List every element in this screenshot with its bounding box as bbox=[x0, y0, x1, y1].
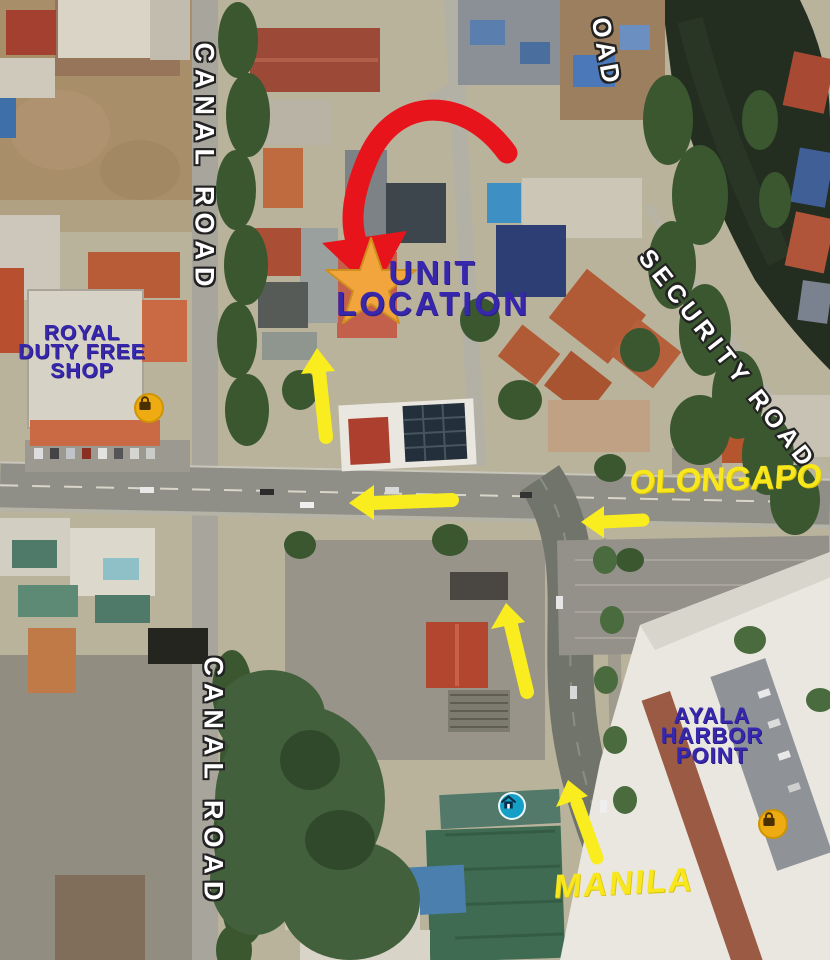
olongapo-direction-label: OLONGAPO bbox=[628, 457, 823, 502]
unit-location-label: UNIT LOCATION bbox=[336, 257, 530, 319]
poi-royal-duty-free bbox=[134, 393, 164, 423]
arrow-up-from-manila bbox=[556, 780, 597, 858]
road-label-canal-road-top: CANAL ROAD bbox=[189, 43, 220, 294]
home-icon bbox=[500, 794, 517, 811]
arrow-left-olongapo-side bbox=[581, 506, 643, 538]
road-label-canal-road-bottom: CANAL ROAD bbox=[198, 657, 229, 908]
royal-line3: SHOP bbox=[18, 362, 146, 381]
shopping-bag-icon bbox=[760, 811, 778, 829]
arrow-up-south-highway bbox=[491, 603, 527, 692]
poi-ayala-harbor-point bbox=[758, 809, 788, 839]
arrow-left-center-highway bbox=[349, 485, 452, 520]
unit-location-line1: UNIT bbox=[336, 257, 530, 288]
ayala-harbor-point-label: AYALA HARBOR POINT bbox=[661, 706, 764, 766]
shopping-bag-icon bbox=[136, 395, 154, 413]
manila-direction-label: MANILA bbox=[552, 860, 695, 906]
annotated-satellite-map: CANAL ROAD CANAL ROAD SECURITY ROAD OAD … bbox=[0, 0, 830, 960]
arrow-up-canal-block bbox=[301, 348, 335, 437]
yellow-arrows bbox=[301, 348, 643, 858]
red-arrow-shaft bbox=[353, 110, 507, 244]
poi-home-marker bbox=[498, 792, 526, 820]
unit-location-line2: LOCATION bbox=[336, 288, 530, 319]
royal-duty-free-label: ROYAL DUTY FREE SHOP bbox=[18, 324, 146, 381]
ayala-line3: POINT bbox=[661, 746, 764, 766]
